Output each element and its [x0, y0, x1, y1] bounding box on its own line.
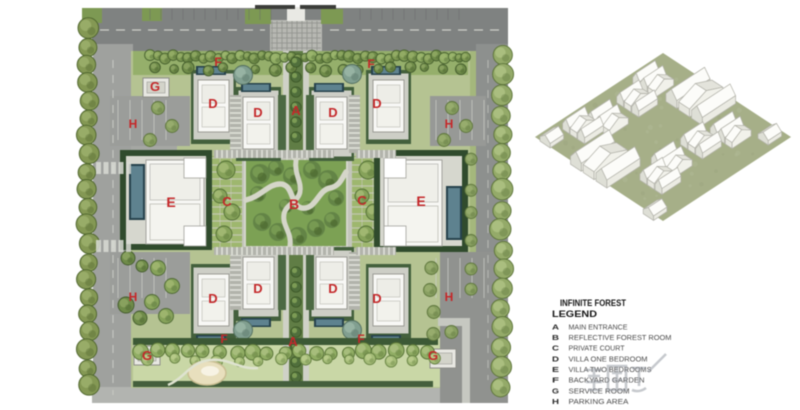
svg-text:C: C [552, 344, 560, 353]
svg-text:D: D [372, 291, 381, 306]
svg-text:H: H [129, 290, 138, 304]
svg-text:G: G [428, 348, 438, 363]
svg-text:E: E [166, 194, 175, 210]
svg-text:H: H [129, 117, 138, 131]
svg-text:E: E [552, 365, 559, 374]
svg-text:MAIN ENTRANCE: MAIN ENTRANCE [569, 322, 628, 331]
svg-text:C: C [222, 194, 232, 209]
svg-text:C: C [357, 193, 367, 208]
svg-text:F: F [357, 332, 364, 346]
svg-text:G: G [552, 386, 559, 395]
svg-text:H: H [445, 290, 454, 304]
svg-text:D: D [372, 96, 381, 111]
svg-text:F: F [214, 55, 221, 69]
svg-text:A: A [291, 103, 301, 118]
svg-text:B: B [289, 196, 299, 212]
svg-text:D: D [208, 291, 217, 306]
svg-text:D: D [328, 281, 337, 296]
svg-text:LEGEND: LEGEND [552, 308, 597, 319]
svg-text:PRIVATE COURT: PRIVATE COURT [569, 344, 626, 353]
svg-text:B: B [552, 333, 560, 342]
svg-text:PARKING AREA: PARKING AREA [569, 397, 629, 405]
svg-text:D: D [552, 354, 560, 363]
svg-text:F: F [367, 57, 374, 71]
svg-text:D: D [253, 281, 262, 296]
svg-text:D: D [328, 105, 337, 120]
svg-text:VILLA ONE BEDROOM: VILLA ONE BEDROOM [569, 354, 648, 363]
svg-text:F: F [220, 332, 227, 346]
svg-text:BACKYARD GARDEN: BACKYARD GARDEN [569, 376, 645, 385]
svg-text:A: A [552, 322, 560, 331]
svg-text:H: H [445, 117, 454, 131]
svg-text:D: D [208, 96, 217, 111]
svg-text:H: H [552, 397, 559, 405]
svg-text:REFLECTIVE FOREST ROOM: REFLECTIVE FOREST ROOM [569, 333, 672, 342]
svg-text:A: A [288, 334, 298, 349]
svg-text:INFINITE FOREST: INFINITE FOREST [560, 297, 626, 308]
svg-text:G: G [142, 348, 152, 363]
svg-text:F: F [552, 376, 560, 385]
svg-text:E: E [416, 193, 425, 209]
svg-text:G: G [150, 79, 160, 94]
svg-text:D: D [253, 105, 262, 120]
